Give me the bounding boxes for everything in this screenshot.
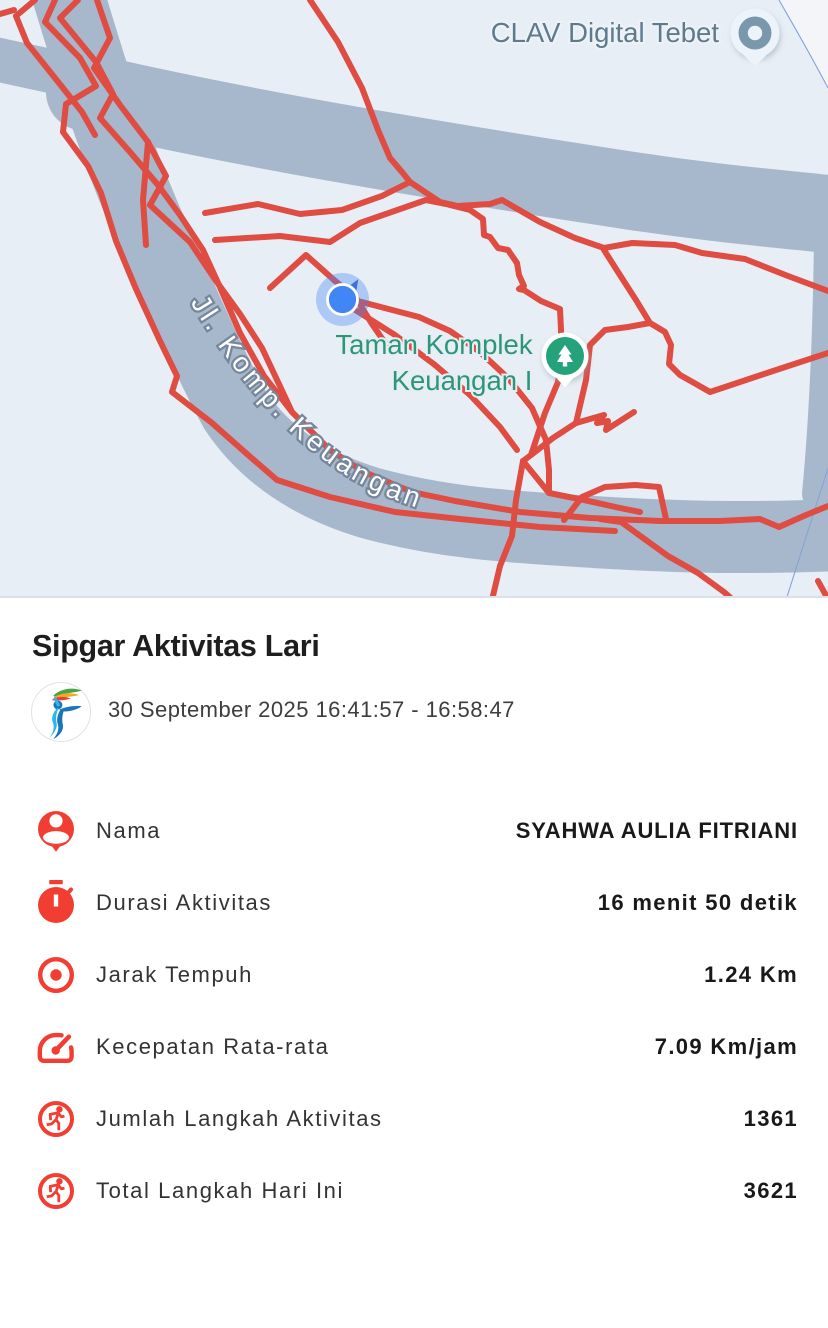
svg-text:Keuangan I: Keuangan I	[392, 365, 533, 396]
svg-text:Taman Komplek: Taman Komplek	[335, 329, 532, 360]
svg-text:CLAV Digital Tebet: CLAV Digital Tebet	[491, 17, 720, 48]
